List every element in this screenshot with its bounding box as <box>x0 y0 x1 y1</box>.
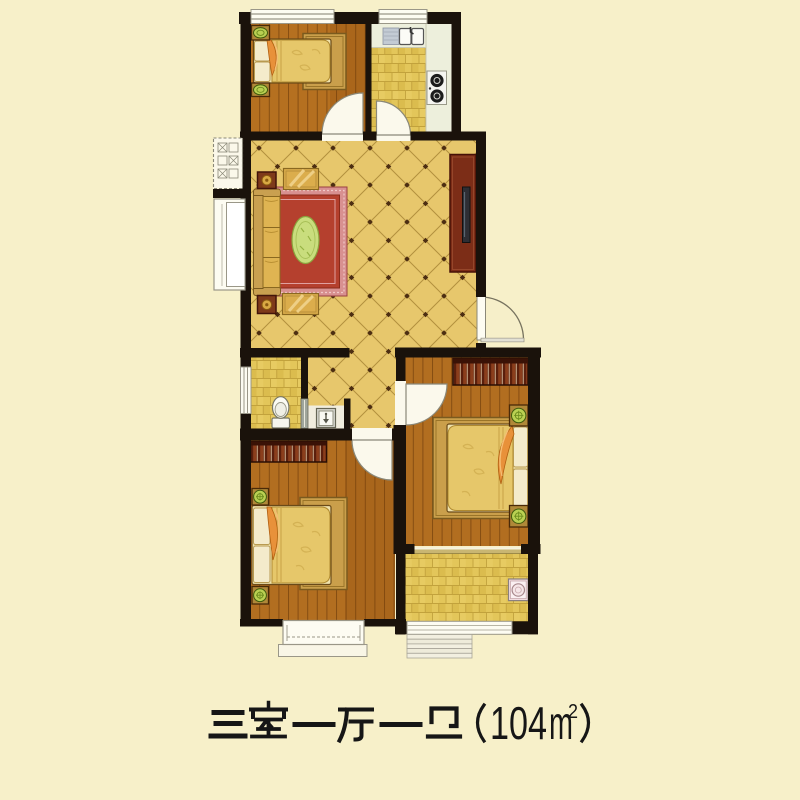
svg-text:2: 2 <box>568 701 578 723</box>
svg-text:104: 104 <box>490 697 547 749</box>
